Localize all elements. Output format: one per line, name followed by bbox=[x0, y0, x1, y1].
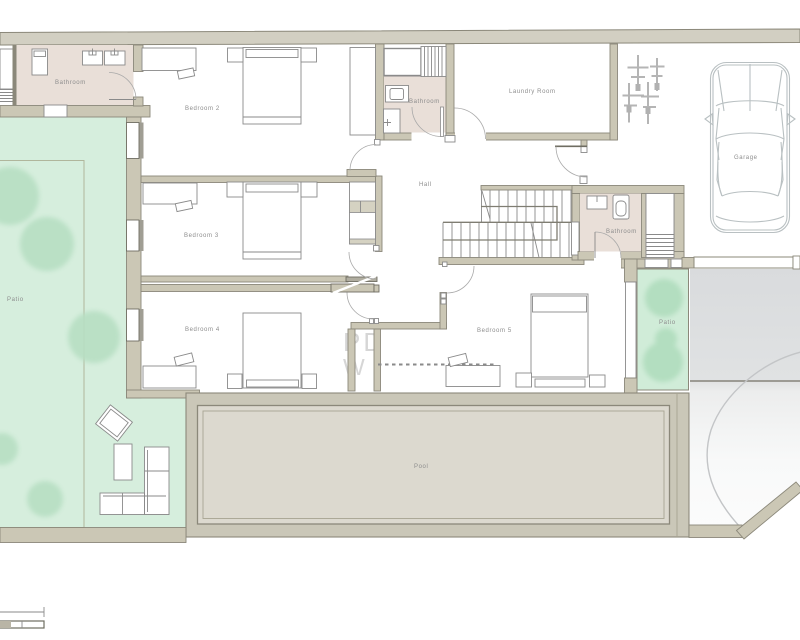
svg-text:Bathroom: Bathroom bbox=[606, 229, 637, 235]
svg-text:Laundry Room: Laundry Room bbox=[509, 89, 556, 95]
svg-text:Garage: Garage bbox=[734, 155, 758, 161]
svg-text:Bedroom 2: Bedroom 2 bbox=[185, 106, 220, 112]
svg-text:Bedroom 5: Bedroom 5 bbox=[477, 328, 512, 334]
svg-text:Bathroom: Bathroom bbox=[55, 80, 86, 86]
svg-text:Hall: Hall bbox=[419, 182, 432, 188]
svg-text:Bedroom 3: Bedroom 3 bbox=[184, 233, 219, 239]
svg-text:Patio: Patio bbox=[659, 320, 676, 326]
svg-text:Bedroom 4: Bedroom 4 bbox=[185, 327, 220, 333]
svg-text:Bathroom: Bathroom bbox=[409, 99, 440, 105]
svg-text:Pool: Pool bbox=[414, 464, 428, 470]
svg-text:Patio: Patio bbox=[7, 297, 24, 303]
